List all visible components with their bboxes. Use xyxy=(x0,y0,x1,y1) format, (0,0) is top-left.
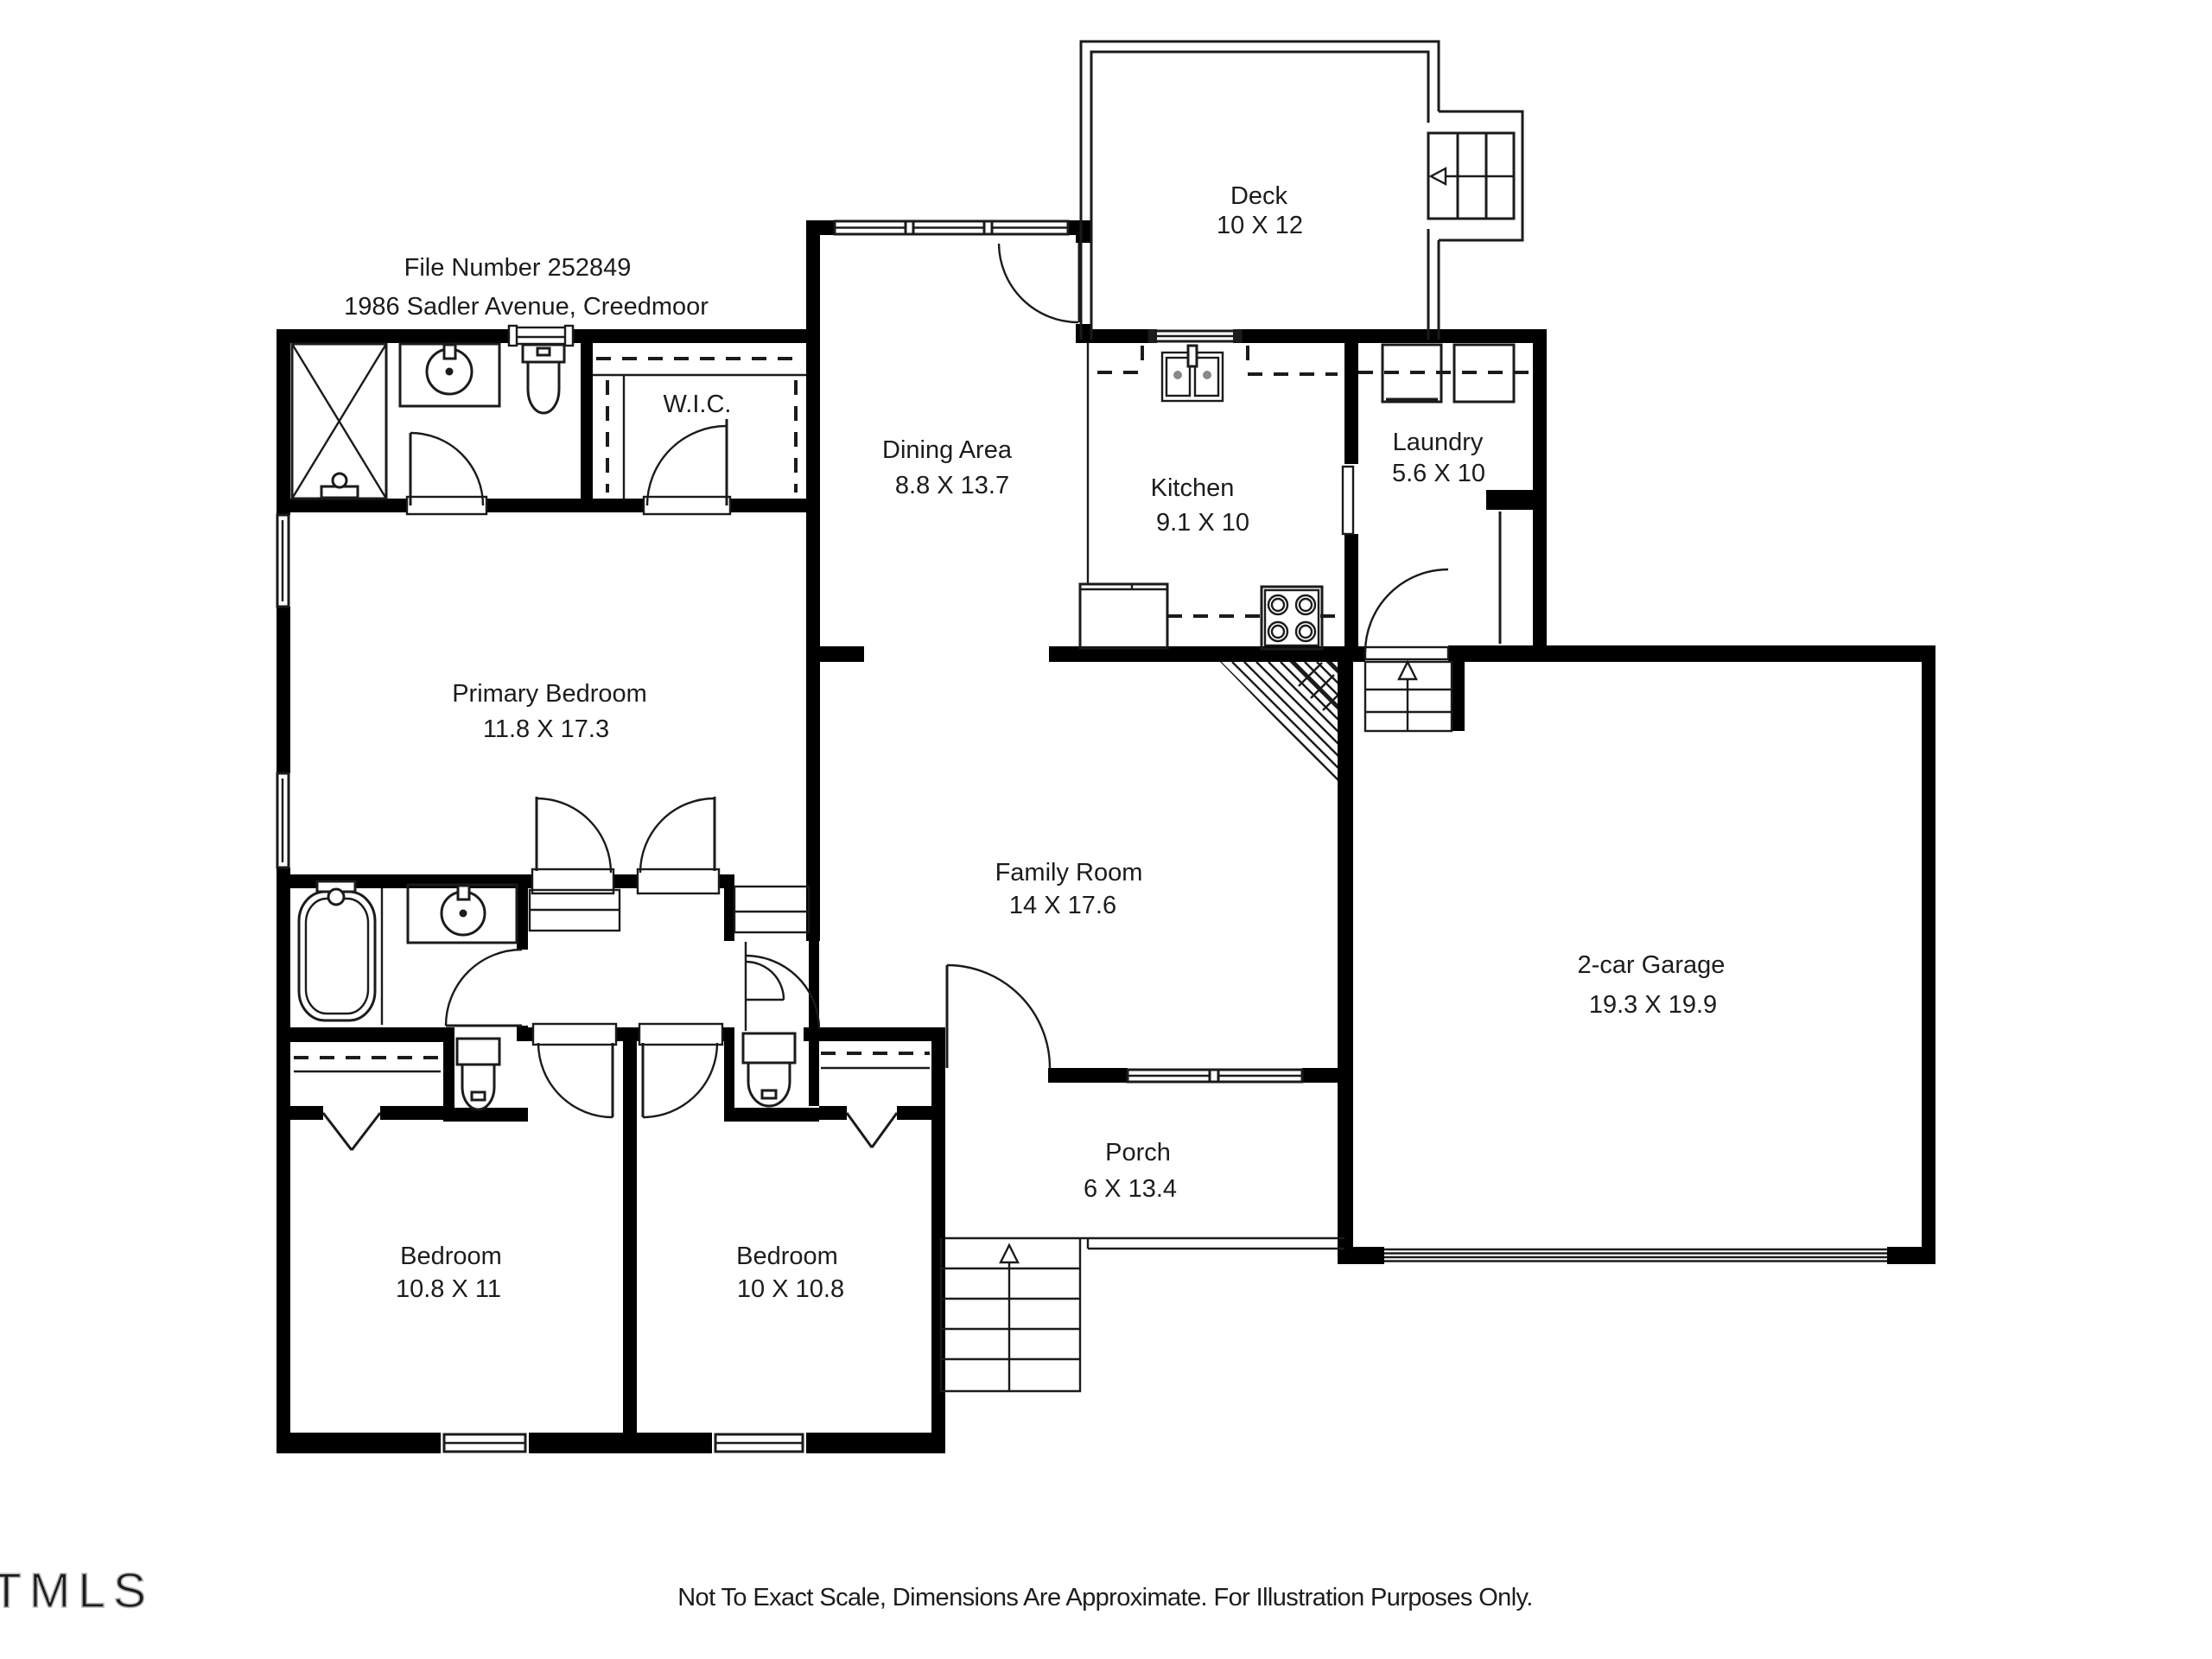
svg-text:2-car Garage: 2-car Garage xyxy=(1578,951,1726,979)
svg-text:11.8 X 17.3: 11.8 X 17.3 xyxy=(483,715,609,743)
svg-text:5.6 X 10: 5.6 X 10 xyxy=(1392,460,1485,487)
svg-text:Porch: Porch xyxy=(1105,1139,1171,1166)
svg-text:10.8 X 11: 10.8 X 11 xyxy=(396,1275,501,1303)
svg-text:10 X 12: 10 X 12 xyxy=(1217,212,1303,239)
svg-text:Deck: Deck xyxy=(1230,182,1288,210)
svg-text:6 X 13.4: 6 X 13.4 xyxy=(1084,1175,1177,1203)
svg-text:8.8 X 13.7: 8.8 X 13.7 xyxy=(895,472,1009,499)
svg-text:TMLS: TMLS xyxy=(0,1563,154,1618)
svg-text:File Number 252849: File Number 252849 xyxy=(404,254,632,282)
svg-text:10 X 10.8: 10 X 10.8 xyxy=(737,1275,844,1303)
svg-text:9.1 X 10: 9.1 X 10 xyxy=(1156,509,1249,537)
svg-text:Bedroom: Bedroom xyxy=(400,1243,502,1270)
svg-text:1986 Sadler Avenue, Creedmoor: 1986 Sadler Avenue, Creedmoor xyxy=(344,293,709,321)
svg-text:Dining Area: Dining Area xyxy=(882,436,1013,464)
svg-text:Not To Exact Scale, Dimensions: Not To Exact Scale, Dimensions Are Appro… xyxy=(677,1584,1533,1611)
svg-text:Laundry: Laundry xyxy=(1393,429,1484,456)
svg-text:Bedroom: Bedroom xyxy=(736,1243,838,1270)
svg-text:14 X 17.6: 14 X 17.6 xyxy=(1009,892,1116,919)
svg-text:Kitchen: Kitchen xyxy=(1151,474,1235,502)
svg-text:W.I.C.: W.I.C. xyxy=(664,391,732,418)
svg-text:19.3 X 19.9: 19.3 X 19.9 xyxy=(1589,991,1717,1019)
svg-text:Family Room: Family Room xyxy=(995,859,1143,887)
svg-text:Primary Bedroom: Primary Bedroom xyxy=(452,680,647,708)
